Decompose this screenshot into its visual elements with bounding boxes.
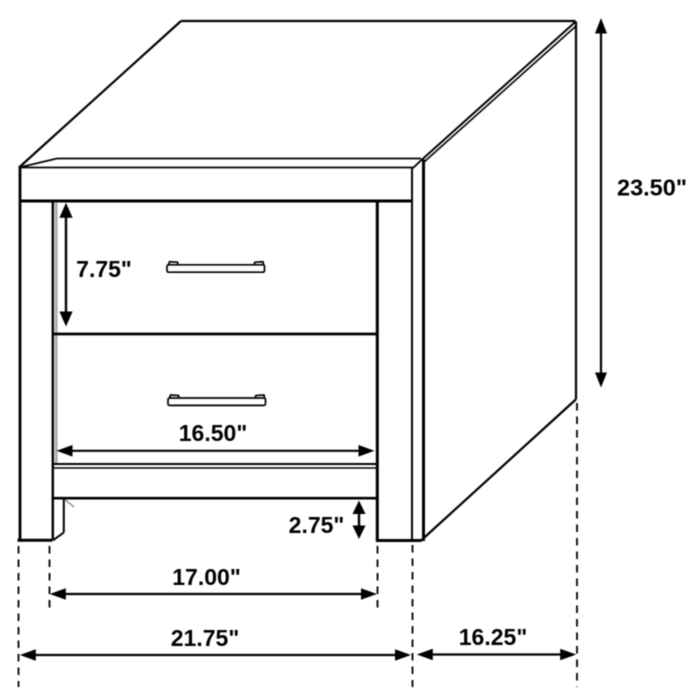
- svg-text:16.50": 16.50": [179, 420, 247, 446]
- svg-text:2.75": 2.75": [289, 512, 345, 538]
- svg-text:7.75": 7.75": [76, 256, 132, 282]
- svg-text:23.50": 23.50": [617, 175, 687, 201]
- svg-text:16.25": 16.25": [459, 624, 527, 650]
- svg-text:21.75": 21.75": [171, 625, 239, 651]
- svg-text:17.00": 17.00": [172, 564, 240, 590]
